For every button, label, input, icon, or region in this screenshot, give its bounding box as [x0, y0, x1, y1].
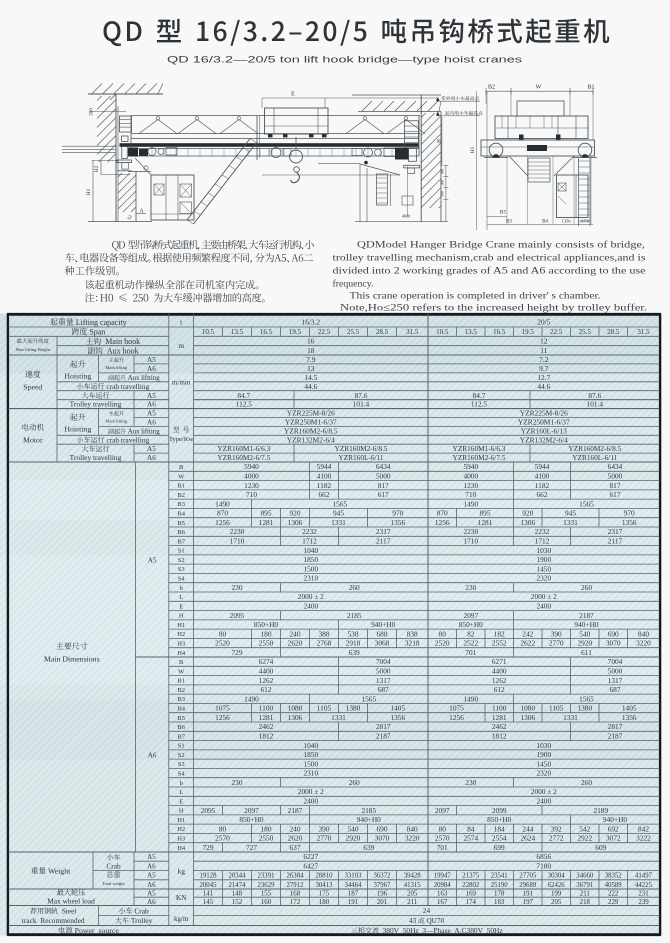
svg-text:H1: H1	[470, 146, 476, 153]
svg-text:4400: 4400	[492, 667, 507, 676]
svg-text:frequency.: frequency.	[333, 279, 374, 290]
svg-text:538: 538	[347, 629, 358, 638]
svg-text:S3: S3	[178, 761, 185, 768]
svg-text:1356: 1356	[390, 518, 405, 527]
svg-text:2574: 2574	[463, 834, 478, 843]
svg-text:101.4: 101.4	[587, 400, 604, 409]
svg-text:211: 211	[407, 899, 418, 906]
svg-text:2520: 2520	[435, 639, 450, 648]
svg-text:2117: 2117	[376, 537, 391, 546]
svg-text:2554: 2554	[492, 834, 507, 843]
svg-text:2097: 2097	[463, 611, 478, 620]
svg-text:4100: 4100	[317, 472, 332, 481]
svg-text:YZR250M1-6/37: YZR250M1-6/37	[285, 418, 337, 427]
svg-text:710: 710	[246, 490, 257, 499]
svg-text:Lifting capacity: Lifting capacity	[74, 318, 127, 327]
svg-text:6434: 6434	[608, 462, 623, 471]
svg-text:6274: 6274	[259, 657, 274, 666]
svg-text:1356: 1356	[622, 713, 637, 722]
svg-text:1565: 1565	[361, 694, 376, 703]
svg-text:3070: 3070	[606, 639, 621, 648]
svg-text:388: 388	[318, 629, 329, 638]
svg-text:W: W	[536, 85, 542, 91]
svg-text:A5: A5	[147, 890, 156, 898]
svg-text:4000: 4000	[244, 472, 259, 481]
svg-text:H: H	[179, 808, 184, 815]
svg-text:H1: H1	[86, 188, 92, 195]
svg-text:970: 970	[392, 509, 403, 518]
svg-text:28.5: 28.5	[376, 328, 389, 336]
svg-text:E: E	[291, 92, 295, 98]
svg-text:2552: 2552	[492, 639, 507, 648]
svg-text:390: 390	[318, 824, 329, 833]
svg-text:1262: 1262	[492, 676, 507, 685]
svg-text:W: W	[178, 668, 185, 675]
svg-text:145: 145	[203, 899, 214, 906]
svg-text:895: 895	[260, 509, 271, 518]
svg-text:205: 205	[551, 899, 562, 906]
svg-text:16.5: 16.5	[493, 328, 506, 336]
svg-text:B7: B7	[177, 733, 185, 740]
svg-text:B5: B5	[177, 715, 185, 722]
svg-text:662: 662	[318, 490, 329, 499]
svg-text:16.5: 16.5	[260, 328, 273, 336]
svg-text:23541: 23541	[491, 873, 508, 880]
svg-text:180: 180	[319, 899, 330, 906]
svg-text:2922: 2922	[577, 834, 592, 843]
svg-text:YZR160L-6/13: YZR160L-6/13	[521, 427, 567, 436]
svg-text:19.5: 19.5	[522, 328, 535, 336]
svg-text:39428: 39428	[404, 873, 422, 880]
svg-text:160: 160	[261, 899, 272, 906]
svg-text:180: 180	[260, 629, 271, 638]
svg-text:612: 612	[494, 685, 505, 694]
svg-text:B6: B6	[177, 724, 185, 731]
svg-text:2620: 2620	[288, 639, 303, 648]
svg-text:YZR132M2-6/4: YZR132M2-6/4	[520, 435, 568, 444]
svg-text:201: 201	[377, 899, 388, 906]
svg-text:1565: 1565	[579, 694, 594, 703]
svg-text:1281: 1281	[259, 518, 274, 527]
svg-text:692: 692	[608, 824, 619, 833]
svg-text:A6: A6	[147, 898, 156, 906]
svg-text:838: 838	[407, 629, 418, 638]
svg-text:1075: 1075	[449, 704, 464, 713]
svg-text:260: 260	[581, 583, 592, 592]
svg-text:4400: 4400	[259, 667, 274, 676]
svg-text:2522: 2522	[463, 639, 478, 648]
svg-text:1040: 1040	[303, 546, 318, 555]
svg-text:2000 ± 2: 2000 ± 2	[298, 787, 324, 796]
svg-text:21474: 21474	[229, 882, 247, 889]
svg-text:542: 542	[579, 824, 590, 833]
svg-text:track Recommended: track Recommended	[22, 916, 85, 925]
svg-text:5000: 5000	[376, 667, 391, 676]
svg-text:2817: 2817	[376, 722, 391, 731]
svg-text:2000 ± 2: 2000 ± 2	[531, 592, 557, 601]
svg-text:YZR225M-8/26: YZR225M-8/26	[287, 409, 335, 418]
svg-text:B4: B4	[177, 706, 185, 713]
svg-text:1500: 1500	[303, 564, 318, 573]
svg-text:Speed: Speed	[23, 383, 42, 392]
svg-text:184: 184	[494, 824, 505, 833]
svg-text:1105: 1105	[317, 704, 332, 713]
svg-text:112.5: 112.5	[236, 400, 252, 409]
svg-text:2000 ± 2: 2000 ± 2	[298, 592, 324, 601]
svg-text:33103: 33103	[345, 873, 363, 880]
svg-text:2187: 2187	[579, 611, 594, 620]
svg-text:2462: 2462	[492, 722, 507, 731]
svg-text:2185: 2185	[347, 611, 362, 620]
svg-text:850+H0: 850+H0	[459, 620, 483, 629]
svg-text:13: 13	[307, 364, 315, 373]
svg-text:2400: 2400	[536, 602, 551, 611]
svg-text:168: 168	[290, 891, 301, 898]
svg-text:9.7: 9.7	[539, 364, 549, 373]
svg-text:Main lifting: Main lifting	[105, 419, 127, 424]
svg-text:1080: 1080	[520, 704, 535, 713]
svg-text:5944: 5944	[317, 462, 332, 471]
svg-text:11: 11	[540, 346, 547, 355]
svg-text:2189: 2189	[593, 806, 608, 815]
svg-text:729: 729	[202, 843, 213, 852]
svg-text:L: L	[179, 594, 183, 601]
svg-text:YZR160M2-6/7.5: YZR160M2-6/7.5	[453, 453, 506, 462]
svg-text:842: 842	[638, 824, 649, 833]
svg-text:196: 196	[377, 891, 388, 898]
svg-text:Motor: Motor	[23, 436, 43, 445]
svg-text:2400: 2400	[303, 602, 318, 611]
svg-text:4000: 4000	[463, 472, 478, 481]
svg-text:2320: 2320	[536, 574, 551, 583]
svg-text:28810: 28810	[316, 873, 334, 880]
svg-text:1281: 1281	[492, 713, 507, 722]
svg-text:940+H0: 940+H0	[371, 620, 395, 629]
svg-text:191: 191	[523, 891, 534, 898]
svg-text:817: 817	[378, 481, 389, 490]
svg-text:2320: 2320	[536, 769, 551, 778]
svg-text:5000: 5000	[608, 472, 623, 481]
svg-text:1380: 1380	[577, 704, 592, 713]
svg-text:1050: 1050	[580, 219, 590, 224]
svg-text:6271: 6271	[492, 657, 507, 666]
svg-text:W: W	[178, 473, 185, 480]
svg-text:A6: A6	[147, 401, 156, 409]
svg-text:2000 ± 2: 2000 ± 2	[531, 787, 557, 796]
svg-text:KN: KN	[176, 893, 187, 902]
svg-text:12.7: 12.7	[537, 373, 550, 382]
svg-text:S4: S4	[178, 576, 186, 583]
svg-text:1080: 1080	[288, 704, 303, 713]
svg-text:62426: 62426	[548, 882, 566, 889]
svg-text:300: 300	[89, 108, 95, 116]
svg-text:690: 690	[376, 824, 387, 833]
svg-text:34464: 34464	[345, 882, 363, 889]
svg-text:19.5: 19.5	[289, 328, 302, 336]
svg-text:639: 639	[363, 843, 374, 852]
svg-text:172: 172	[290, 899, 301, 906]
svg-text:2317: 2317	[376, 527, 391, 536]
svg-text:920: 920	[522, 509, 533, 518]
svg-text:850+H0: 850+H0	[487, 815, 511, 824]
svg-text:6856: 6856	[536, 852, 551, 861]
svg-text:27912: 27912	[287, 882, 305, 889]
svg-text:617: 617	[378, 490, 389, 499]
svg-text:970: 970	[624, 509, 635, 518]
svg-text:1490: 1490	[215, 499, 230, 508]
svg-text:870: 870	[217, 509, 228, 518]
svg-text:1900: 1900	[536, 555, 551, 564]
svg-text:260: 260	[349, 778, 360, 787]
svg-text:1230: 1230	[244, 481, 259, 490]
svg-text:5000: 5000	[376, 472, 391, 481]
svg-text:1317: 1317	[608, 676, 623, 685]
svg-text:1317: 1317	[376, 676, 391, 685]
svg-text:2570: 2570	[435, 834, 450, 843]
svg-text:240: 240	[289, 629, 300, 638]
svg-text:639: 639	[349, 648, 360, 657]
svg-text:YZR160M1-6/6.3: YZR160M1-6/6.3	[217, 444, 270, 453]
svg-text:2768: 2768	[317, 639, 332, 648]
svg-text:B4: B4	[177, 511, 185, 518]
svg-text:850+H0: 850+H0	[254, 620, 278, 629]
svg-text:3220: 3220	[636, 639, 651, 648]
svg-text:A6: A6	[147, 863, 156, 871]
svg-text:YZR160L-6/11: YZR160L-6/11	[338, 453, 383, 462]
svg-text:167: 167	[437, 899, 448, 906]
svg-text:191: 191	[348, 899, 359, 906]
svg-text:H: H	[179, 613, 184, 620]
svg-text:2232: 2232	[302, 527, 317, 536]
svg-text:13.5: 13.5	[231, 328, 244, 336]
svg-text:197: 197	[523, 899, 534, 906]
svg-text:12: 12	[540, 337, 548, 346]
svg-text:187: 187	[348, 891, 359, 898]
svg-text:A5: A5	[147, 410, 156, 418]
svg-text:1565: 1565	[579, 499, 594, 508]
svg-text:163: 163	[437, 891, 448, 898]
svg-text:7180: 7180	[536, 862, 551, 871]
svg-text:Note,Ho≤250 refers to the incr: Note,Ho≤250 refers to the increased heig…	[340, 303, 647, 314]
svg-text:1712: 1712	[535, 537, 550, 546]
svg-text:1331: 1331	[331, 713, 346, 722]
svg-text:101.4: 101.4	[353, 400, 370, 409]
svg-text:Trolley: Trolley	[129, 916, 153, 925]
svg-text:2187: 2187	[376, 732, 391, 741]
svg-text:44225: 44225	[635, 882, 653, 889]
svg-text:QDModel Hanger Bridge Crane ma: QDModel Hanger Bridge Crane mainly consi…	[357, 240, 645, 251]
svg-text:10.5: 10.5	[436, 328, 449, 336]
svg-text:300: 300	[441, 191, 445, 197]
svg-text:Hoisting: Hoisting	[64, 425, 91, 434]
svg-text:Max lifting Height: Max lifting Height	[16, 347, 51, 352]
svg-text:205: 205	[407, 891, 418, 898]
svg-text:2624: 2624	[520, 834, 535, 843]
svg-text:230: 230	[465, 778, 476, 787]
svg-text:H1: H1	[177, 622, 185, 629]
svg-text:S2: S2	[178, 557, 185, 564]
svg-text:1405: 1405	[622, 704, 637, 713]
svg-text:2117: 2117	[608, 537, 623, 546]
svg-text:1812: 1812	[259, 732, 274, 741]
svg-text:141: 141	[203, 891, 214, 898]
svg-text:112.5: 112.5	[471, 400, 487, 409]
svg-text:1331: 1331	[563, 713, 578, 722]
svg-text:trolley travelling mechanism,c: trolley travelling mechanism,crab and el…	[333, 253, 646, 264]
svg-text:29689: 29689	[519, 882, 537, 889]
svg-text:920: 920	[289, 509, 300, 518]
svg-text:1105: 1105	[549, 704, 564, 713]
svg-text:1490: 1490	[244, 694, 259, 703]
svg-text:1306: 1306	[520, 713, 535, 722]
svg-text:1850: 1850	[303, 555, 318, 564]
svg-text:B: B	[179, 464, 184, 471]
svg-text:25.5: 25.5	[347, 328, 360, 336]
svg-text:84.7: 84.7	[237, 391, 250, 400]
svg-text:701: 701	[437, 843, 448, 852]
svg-text:S3: S3	[178, 566, 185, 573]
svg-text:687: 687	[609, 685, 620, 694]
svg-text:1356: 1356	[390, 713, 405, 722]
svg-text:3070: 3070	[375, 834, 390, 843]
svg-text:Main lifting: Main lifting	[105, 365, 127, 370]
svg-text:3222: 3222	[636, 834, 651, 843]
svg-text:B1: B1	[177, 483, 185, 490]
svg-text:Type/Kw: Type/Kw	[169, 436, 194, 443]
svg-text:14.5: 14.5	[304, 373, 317, 382]
svg-text:175: 175	[319, 891, 330, 898]
svg-text:E: E	[179, 603, 183, 610]
svg-text:183: 183	[494, 899, 505, 906]
svg-text:crab travelling: crab travelling	[105, 382, 150, 391]
svg-text:1450: 1450	[536, 564, 551, 573]
svg-text:20344: 20344	[229, 873, 247, 880]
svg-text:t: t	[180, 317, 182, 326]
svg-text:Crab: Crab	[133, 906, 150, 915]
svg-text:A5: A5	[148, 557, 157, 565]
svg-text:20984: 20984	[434, 882, 452, 889]
svg-text:240: 240	[289, 824, 300, 833]
svg-text:25190: 25190	[491, 882, 509, 889]
svg-text:699: 699	[494, 843, 505, 852]
svg-text:22.5: 22.5	[550, 328, 563, 336]
svg-text:1712: 1712	[302, 537, 317, 546]
svg-text:18: 18	[307, 346, 315, 355]
svg-text:239: 239	[638, 899, 649, 906]
svg-text:540: 540	[579, 629, 590, 638]
svg-text:850+H0: 850+H0	[239, 815, 263, 824]
svg-text:B5: B5	[500, 210, 507, 216]
svg-text:174: 174	[466, 899, 477, 906]
svg-text:612: 612	[260, 685, 271, 694]
svg-text:80: 80	[219, 824, 227, 833]
svg-text:YZR160M2-6/7.5: YZR160M2-6/7.5	[217, 453, 270, 462]
svg-text:218: 218	[580, 899, 591, 906]
svg-text:B4: B4	[542, 220, 548, 225]
svg-text:19128: 19128	[200, 873, 218, 880]
svg-text:Max wheel load: Max wheel load	[47, 897, 95, 906]
svg-text:22.5: 22.5	[318, 328, 331, 336]
svg-text:229: 229	[608, 899, 619, 906]
svg-text:B2: B2	[177, 687, 185, 694]
svg-text:7.2: 7.2	[539, 355, 549, 364]
svg-text:945: 945	[333, 509, 344, 518]
svg-text:7004: 7004	[608, 657, 623, 666]
svg-text:B: B	[179, 659, 184, 666]
svg-text:817: 817	[609, 481, 620, 490]
svg-text:392: 392	[551, 824, 562, 833]
svg-text:H2: H2	[94, 165, 100, 172]
svg-text:22802: 22802	[462, 882, 480, 889]
svg-text:2550: 2550	[259, 834, 274, 843]
svg-text:L: L	[179, 789, 183, 796]
svg-text:199: 199	[551, 891, 562, 898]
svg-text:2097: 2097	[244, 806, 259, 815]
svg-text:Weight: Weight	[46, 867, 71, 876]
svg-text:H: H	[437, 139, 443, 143]
svg-text:182: 182	[494, 629, 505, 638]
svg-text:940+H0: 940+H0	[603, 815, 627, 824]
svg-text:2097: 2097	[435, 806, 450, 815]
svg-text:A5: A5	[147, 356, 156, 364]
svg-text:YZR160M2-6/8.5: YZR160M2-6/8.5	[568, 444, 621, 453]
svg-text:Steel: Steel	[58, 906, 76, 915]
svg-text:230: 230	[465, 583, 476, 592]
svg-text:A6: A6	[147, 365, 156, 373]
svg-text:169: 169	[466, 891, 477, 898]
svg-text:YZR225M-8/26: YZR225M-8/26	[520, 409, 568, 418]
svg-text:2230: 2230	[230, 527, 245, 536]
svg-text:Crab: Crab	[106, 861, 121, 870]
svg-text:1100: 1100	[259, 704, 274, 713]
svg-text:1182: 1182	[535, 481, 550, 490]
svg-text:36372: 36372	[374, 873, 392, 880]
svg-text:940+H0: 940+H0	[357, 815, 381, 824]
svg-text:80: 80	[439, 629, 447, 638]
svg-text:16/3.2: 16/3.2	[302, 317, 321, 326]
svg-text:6434: 6434	[376, 462, 391, 471]
svg-text:1331: 1331	[563, 518, 578, 527]
svg-text:1182: 1182	[317, 481, 332, 490]
svg-text:1030: 1030	[536, 546, 551, 555]
svg-text:1900: 1900	[536, 750, 551, 759]
svg-text:840: 840	[407, 824, 418, 833]
svg-text:QD 16/3.2—20/5 ton lift hook b: QD 16/3.2—20/5 ton lift hook bridge—type…	[167, 55, 522, 66]
svg-text:637: 637	[289, 843, 300, 852]
svg-text:662: 662	[536, 490, 547, 499]
svg-text:2622: 2622	[520, 639, 535, 648]
svg-text:152: 152	[232, 899, 243, 906]
svg-text:390: 390	[551, 629, 562, 638]
svg-text:1490: 1490	[463, 499, 478, 508]
svg-text:895: 895	[479, 509, 490, 518]
svg-text:7.9: 7.9	[306, 355, 316, 364]
svg-text:H2: H2	[177, 631, 185, 638]
svg-text:82: 82	[467, 629, 475, 638]
svg-text:B2: B2	[488, 85, 495, 91]
svg-text:300: 300	[441, 169, 445, 175]
svg-text:16: 16	[307, 337, 315, 346]
svg-text:H3: H3	[177, 641, 185, 648]
svg-text:2770: 2770	[317, 834, 332, 843]
svg-text:2920: 2920	[346, 834, 361, 843]
svg-text:41315: 41315	[404, 882, 422, 889]
svg-text:300: 300	[441, 180, 445, 186]
svg-text:2185: 2185	[361, 806, 376, 815]
svg-text:5940: 5940	[463, 462, 478, 471]
svg-text:2187: 2187	[608, 732, 623, 741]
svg-text:S4: S4	[178, 771, 186, 778]
